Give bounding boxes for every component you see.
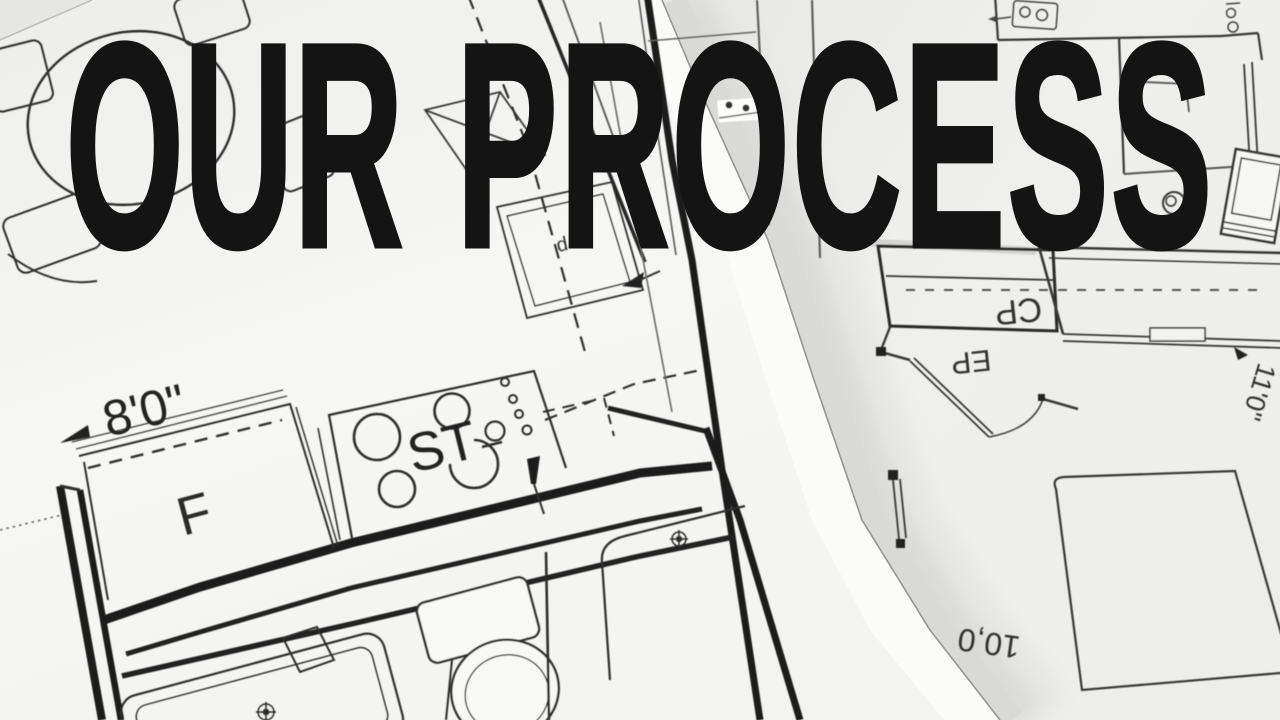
svg-text:EP: EP bbox=[949, 343, 992, 380]
svg-text:PROCESS: PROCESS bbox=[456, 0, 1214, 309]
svg-text:OUR: OUR bbox=[66, 0, 404, 309]
